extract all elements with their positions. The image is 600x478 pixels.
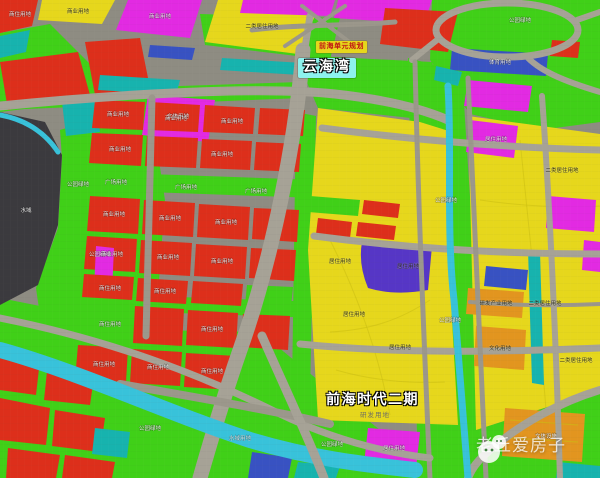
- phase2-subtext: 研发用地: [360, 412, 390, 419]
- zone-label: 商业用地: [149, 12, 172, 20]
- zone-label: 商业用地: [211, 257, 234, 265]
- zone-label: 二类居住用地: [545, 166, 579, 174]
- bay-project-label: 云海湾: [298, 58, 356, 78]
- zone-label: 公园绿地: [67, 180, 90, 188]
- zone-label: 商业用地: [67, 7, 90, 15]
- zone-label: 商住用地: [99, 320, 122, 328]
- zone-label: 二类居住用地: [245, 22, 279, 30]
- zone-label: 商业用地: [221, 117, 244, 125]
- zone-label: 商业用地: [157, 253, 180, 261]
- zone-label: 居住用地: [389, 343, 412, 351]
- zone-label: 二类居住用地: [559, 356, 593, 364]
- zone-label: 商业用地: [103, 210, 126, 218]
- house-mascot-icon: [476, 431, 508, 467]
- zone-label: 商业用地: [215, 218, 238, 226]
- zone-label: 商住用地: [9, 10, 32, 18]
- zone-label: 商住用地: [99, 284, 122, 292]
- zone-label: 商业用地: [101, 250, 124, 258]
- zone-label: 商住用地: [154, 287, 177, 295]
- map-figure: 商住用地商业用地商业用地二类居住用地文体用地公园绿地体育用地公园绿地公园绿地水域…: [0, 0, 600, 478]
- zone-label: 公园绿地: [139, 424, 162, 432]
- zone-label: 二类居住用地: [528, 299, 562, 307]
- zone-label: 商住用地: [147, 363, 170, 371]
- zone-label: 商住用地: [93, 360, 116, 368]
- zone-label: 商业用地: [211, 150, 234, 158]
- zone-label: 居住用地: [397, 262, 420, 270]
- zone-label: 商业用地: [107, 110, 130, 118]
- zone-label: 商业用地: [109, 145, 132, 153]
- zone-label: 居住用地: [383, 444, 406, 452]
- zone-label: 公园绿地: [439, 316, 462, 324]
- zone-label: 研发产业用地: [479, 299, 513, 307]
- zone-label: 广场用地: [105, 178, 128, 186]
- phase2-project-label: 前海时代二期: [326, 393, 419, 408]
- zone-label: 商业用地: [159, 214, 182, 222]
- zone-label: 商业用地: [165, 114, 188, 122]
- watermark: 老丘爱房子: [476, 431, 566, 456]
- zone-label: 公园绿地: [509, 16, 532, 24]
- zone-label: 广场用地: [175, 183, 198, 191]
- zone-label: 水域: [20, 206, 32, 214]
- zone-label: 居住用地: [343, 310, 366, 318]
- zone-label: 水域用地: [229, 434, 252, 442]
- zone-label: 居住用地: [329, 257, 352, 265]
- zone-label: 广场用地: [245, 187, 268, 195]
- zone-label: 文化用地: [489, 344, 512, 352]
- planning-unit-badge: 前海单元规划: [316, 41, 367, 53]
- zone-label: 体育用地: [489, 58, 512, 66]
- zone-label: 商住用地: [201, 325, 224, 333]
- zone-label: 居住用地: [485, 135, 508, 143]
- zone-label: 公园绿地: [435, 196, 458, 204]
- zone-label: 商住用地: [201, 367, 224, 375]
- zone-label: 公园绿地: [321, 440, 344, 448]
